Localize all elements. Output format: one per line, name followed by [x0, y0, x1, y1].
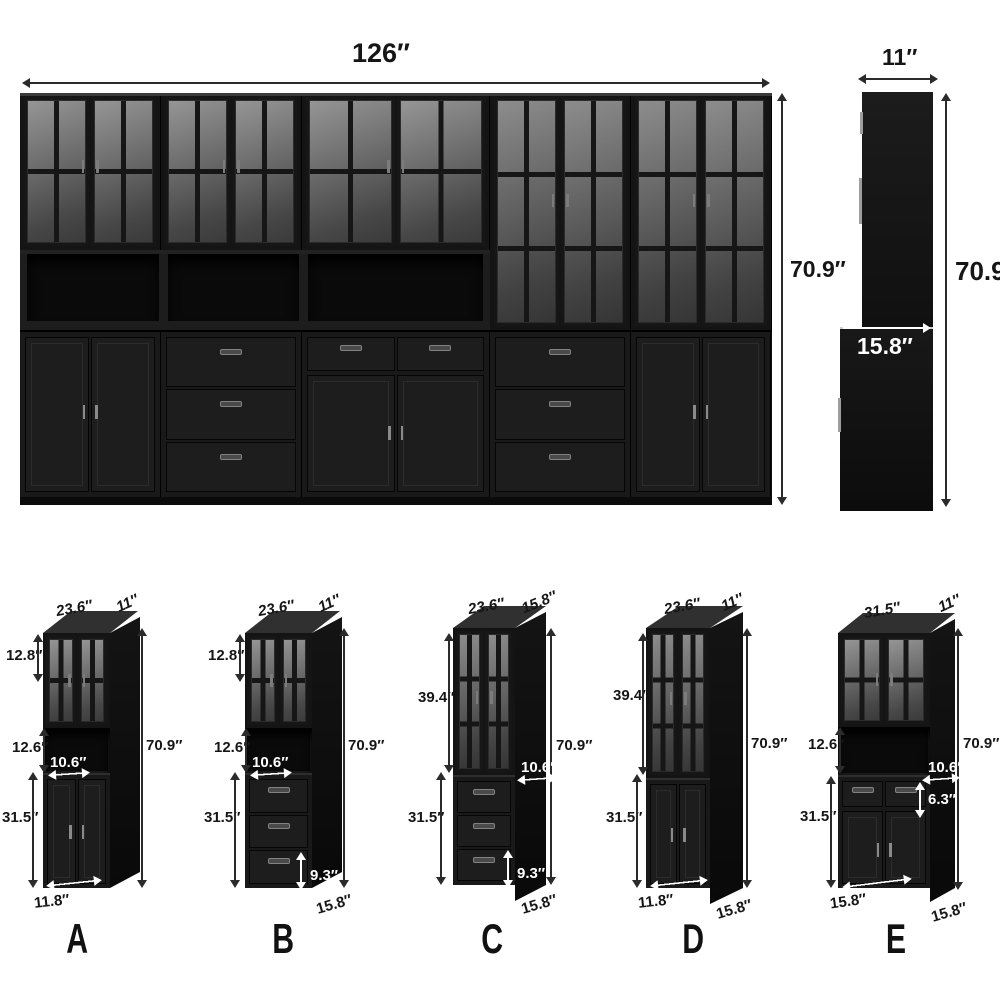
front-width-label: 126″	[352, 40, 410, 67]
base-height-arrow	[826, 776, 836, 888]
glass-door-row	[43, 633, 110, 728]
hutch-cabinet-a	[20, 93, 161, 250]
glass-door	[494, 97, 559, 326]
glass-door	[165, 97, 230, 246]
cabinet-c-top-depth-label: 15.8″	[520, 589, 559, 617]
glass-door	[306, 97, 395, 246]
glass-door	[232, 97, 297, 246]
base-height-arrow	[28, 772, 38, 888]
door-row	[307, 375, 484, 492]
cabinet-b-total-height-label: 70.9″	[348, 738, 384, 753]
glass-height-arrow	[33, 634, 43, 682]
cabinet-door	[91, 337, 155, 492]
cabinet-door	[47, 779, 76, 884]
cabinet-door	[885, 811, 926, 884]
cabinet-e-base-width-label: 15.8″	[829, 892, 867, 912]
glass-door	[46, 636, 76, 725]
cabinet-e-total-height-label: 70.9″	[963, 736, 999, 751]
base-depth-dimension-arrow	[843, 323, 931, 333]
cabinet-door	[702, 337, 766, 492]
glass-door-row	[453, 628, 515, 775]
base-height-arrow	[230, 772, 240, 888]
drawer	[166, 389, 296, 439]
cabinet-b-drawer-height-label: 9.3″	[310, 868, 338, 883]
cabinet-d-base-depth-label: 15.8″	[715, 897, 754, 921]
open-shelf	[308, 254, 483, 321]
open-shelf	[838, 727, 930, 775]
base-drawer-cabinet	[490, 332, 631, 497]
hutch-cabinet-d	[631, 93, 772, 330]
base-double-door-cabinet	[20, 332, 161, 497]
drawer	[249, 815, 308, 849]
front-width-dimension-arrow	[22, 78, 770, 88]
shelf-height-arrow	[835, 727, 845, 774]
drawer	[495, 337, 625, 387]
hutch-handle-mark	[860, 112, 863, 134]
cabinet-a-side-face	[110, 617, 140, 888]
glass-door	[91, 97, 156, 246]
glass-door	[679, 631, 707, 775]
drawer	[397, 337, 485, 371]
glass-door-row	[245, 633, 312, 728]
glass-height-arrow	[638, 633, 648, 775]
cabinet-d-front	[646, 628, 710, 888]
drawer-row	[307, 337, 484, 371]
furniture-dimension-diagram: 126″	[0, 0, 1000, 1000]
glass-door-row	[838, 633, 930, 727]
cabinet-e-front	[838, 633, 930, 888]
drawer	[457, 815, 511, 847]
cabinet-c-side-face	[515, 612, 546, 901]
hutch-cabinet-c	[490, 93, 631, 330]
total-height-arrow	[137, 628, 147, 888]
glass-door-row	[20, 93, 490, 250]
drawer-height-arrow	[503, 850, 513, 888]
base-drawer-cabinet	[161, 332, 302, 497]
side-depth-label: 11″	[882, 46, 917, 69]
cabinet-door	[650, 784, 677, 884]
hutch-handle-mark	[859, 178, 862, 224]
door-row	[646, 778, 710, 888]
base-height-arrow	[436, 772, 446, 885]
open-shelf	[27, 254, 159, 321]
glass-door	[485, 631, 512, 772]
cabinet-b-base-depth-label: 15.8″	[315, 892, 354, 916]
glass-door	[841, 636, 883, 724]
drawer	[495, 442, 625, 492]
front-height-label: 70.9″	[790, 258, 846, 281]
glass-door	[456, 631, 483, 772]
open-shelf	[168, 254, 300, 321]
cabinet-d-letter: D	[682, 918, 704, 960]
drawer	[166, 337, 296, 387]
hutch-cabinet-e	[302, 93, 490, 250]
glass-door	[702, 97, 767, 326]
combined-cabinet-front-view	[20, 93, 772, 505]
hutch-left-group	[20, 93, 490, 330]
drawer	[457, 781, 511, 813]
drawer	[842, 781, 883, 807]
side-height-dimension-arrow	[941, 93, 951, 507]
glass-door	[561, 97, 626, 326]
glass-door	[397, 97, 486, 246]
side-depth-dimension-arrow	[858, 74, 938, 84]
glass-door	[280, 636, 310, 725]
cabinet-c-drawer-height-label: 9.3″	[517, 866, 545, 881]
glass-door-row	[646, 628, 710, 778]
base-section	[20, 330, 772, 497]
cabinet-door	[307, 375, 395, 492]
cabinet-d-base-width-label: 11.8″	[637, 892, 674, 911]
base-height-arrow	[632, 774, 642, 888]
drawer-height-arrow	[915, 782, 925, 818]
cabinet-c-total-height-label: 70.9″	[556, 738, 592, 753]
open-shelf-row	[20, 250, 490, 330]
cabinet-d-side-face	[710, 612, 743, 904]
cabinet-c-base-depth-label: 15.8″	[520, 892, 559, 916]
cabinet-a-base-width-label: 11.8″	[33, 892, 70, 911]
drawer	[249, 779, 308, 813]
glass-door	[649, 631, 677, 775]
door-row	[43, 773, 110, 888]
drawer-height-arrow	[296, 852, 306, 890]
cabinet-c-front	[453, 628, 515, 885]
cabinet-door	[397, 375, 485, 492]
hutch-section	[20, 93, 772, 330]
cabinet-door	[78, 779, 107, 884]
shelf-height-arrow	[241, 728, 251, 773]
cabinet-door	[842, 811, 883, 884]
glass-door	[78, 636, 108, 725]
cabinet-door	[636, 337, 700, 492]
cabinet-e-letter: E	[886, 918, 906, 960]
base-double-door-cabinet	[631, 332, 771, 497]
cabinet-b-letter: B	[272, 918, 294, 960]
side-height-label: 70.9″	[955, 258, 1000, 284]
drawer	[307, 337, 395, 371]
base-center-cabinet	[302, 332, 490, 497]
hutch-right-group	[490, 93, 772, 330]
glass-door	[24, 97, 89, 246]
glass-height-arrow	[444, 633, 454, 773]
glass-door	[885, 636, 927, 724]
side-base-depth-label: 15.8″	[857, 335, 913, 358]
hutch-cabinet-b	[161, 93, 302, 250]
cabinet-a-letter: A	[66, 918, 88, 960]
cabinet-c-letter: C	[481, 918, 503, 960]
total-height-arrow	[339, 628, 349, 888]
side-view-hutch	[862, 92, 933, 329]
cabinet-e-drawer-height-label: 6.3″	[928, 792, 956, 807]
cabinet-e-base-depth-label: 15.8″	[930, 900, 969, 924]
front-height-dimension-arrow	[777, 93, 787, 505]
drawer	[166, 442, 296, 492]
cabinet-door	[25, 337, 89, 492]
cabinet-d-top-depth-label: 11″	[719, 591, 746, 614]
cabinet-e-top-depth-label: 11″	[936, 592, 963, 615]
door-row	[842, 811, 926, 884]
shelf-height-arrow	[39, 728, 49, 773]
cabinet-b-side-face	[312, 617, 342, 888]
glass-height-arrow	[235, 634, 245, 682]
cabinet-d-total-height-label: 70.9″	[751, 736, 787, 751]
glass-door	[635, 97, 700, 326]
base-handle-mark	[838, 398, 841, 432]
drawer-row	[842, 781, 926, 807]
cabinet-door	[679, 784, 706, 884]
total-height-arrow	[742, 628, 752, 888]
cabinet-a-total-height-label: 70.9″	[146, 738, 182, 753]
drawer	[495, 389, 625, 439]
total-height-arrow	[546, 628, 556, 885]
glass-door	[248, 636, 278, 725]
